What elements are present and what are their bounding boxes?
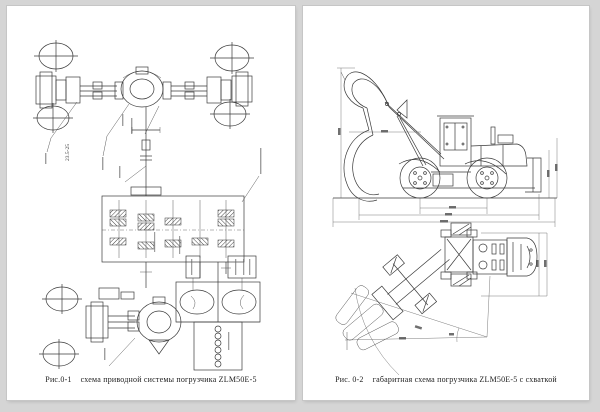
figure-1-title: схема приводной системы погрузчика ZLM50…	[81, 375, 257, 384]
drive-system-drawing	[7, 6, 295, 400]
driveshaft-group	[119, 107, 161, 196]
figure-2-title: габаритная схема погрузчика ZLM50E-5 с с…	[373, 375, 557, 384]
loader-side-view	[333, 68, 558, 227]
figure-2-caption: Рис. 0-2габаритная схема погрузчика ZLM5…	[303, 375, 589, 384]
torque-converter-engine-group	[176, 256, 260, 370]
tire-size-label: 23.5-25	[63, 136, 73, 170]
loader-top-view	[325, 223, 547, 375]
page-left: 23.5-25 Рис.0-1схема приводной системы п…	[7, 6, 295, 400]
document-canvas: 23.5-25 Рис.0-1схема приводной системы п…	[0, 0, 600, 412]
lower-shafts-group	[140, 262, 231, 288]
gearbox-group	[102, 148, 261, 262]
figure-1-caption: Рис.0-1схема приводной системы погрузчик…	[7, 375, 295, 384]
rear-axle-group	[39, 284, 181, 369]
front-section-rotated	[325, 230, 465, 362]
loader-dimensional-drawing	[303, 6, 589, 400]
page-right: Рис. 0-2габаритная схема погрузчика ZLM5…	[303, 6, 589, 400]
figure-1-number: Рис.0-1	[45, 375, 71, 384]
figure-2-number: Рис. 0-2	[335, 375, 364, 384]
turning-radius-geometry	[345, 276, 490, 375]
